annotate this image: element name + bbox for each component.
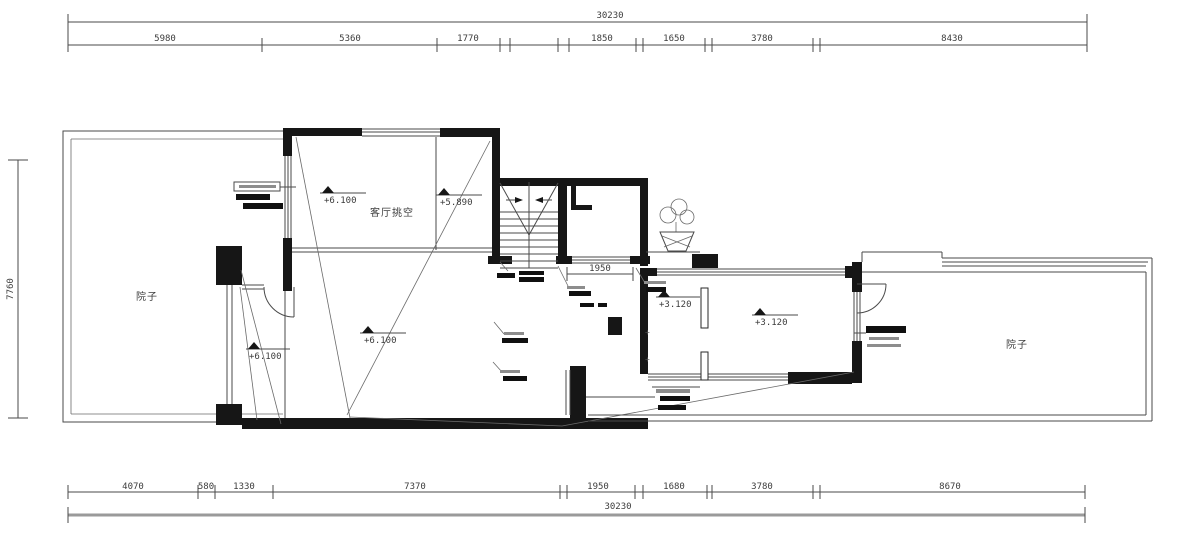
room-label-living-void: 客厅挑空 (370, 206, 414, 219)
elevation-marker-6: +3.120 (752, 308, 798, 328)
floorplan-drawing: 30230 5980 5360 1770 1850 1650 3780 8430 (0, 0, 1200, 539)
dimension-bottom-chain: 4070 580 1330 7370 1950 1680 3780 8670 (68, 482, 1085, 499)
dim-bottom-8: 8670 (939, 482, 961, 492)
dim-bottom-5: 1950 (587, 482, 609, 492)
dim-bottom-1: 4070 (122, 482, 144, 492)
room-label-courtyard-left: 院子 (136, 290, 158, 303)
elevation-value: +5.890 (440, 198, 473, 208)
elevation-value: +6.100 (364, 336, 397, 346)
elevation-value: +3.120 (659, 300, 692, 310)
elevation-marker-1: +6.100 (320, 186, 366, 206)
svg-text:+: + (645, 328, 650, 337)
annotation-stair-bottom (497, 262, 544, 282)
elevation-marker-5: +3.120 (656, 290, 700, 310)
dim-top-7: 8430 (941, 34, 963, 44)
dimension-left: 7760 (6, 160, 28, 418)
annotation-hall-1 (558, 266, 591, 296)
floorplan-canvas: 30230 5980 5360 1770 1850 1650 3780 8430 (0, 0, 1200, 539)
elevation-value: +3.120 (755, 318, 788, 328)
dim-top-2: 5360 (339, 34, 361, 44)
courtyard-right: 院子 (588, 252, 1152, 421)
wall-end-cap (701, 288, 708, 328)
dim-overall-left: 7760 (6, 278, 16, 300)
annotation-low-left (493, 362, 527, 381)
elevation-marker-4: +6.100 (246, 342, 290, 362)
elevation-marker-3: +6.100 (360, 326, 406, 346)
dim-bottom-4: 7370 (404, 482, 426, 492)
dimension-bottom-overall: 30230 (68, 502, 1085, 523)
annotation-small-bars (580, 303, 607, 307)
dim-interior: 1950 (589, 264, 611, 274)
shaft-symbol (571, 185, 592, 210)
dim-bottom-6: 1680 (663, 482, 685, 492)
room-label-courtyard-right: 院子 (1006, 338, 1028, 351)
staircase (500, 182, 558, 268)
dim-bottom-2: 580 (198, 482, 214, 492)
dimension-interior: 1950 (567, 264, 633, 281)
dim-top-3: 1770 (457, 34, 479, 44)
dim-bottom-3: 1330 (233, 482, 255, 492)
annotation-mid-left (494, 322, 528, 343)
dim-top-5: 1650 (663, 34, 685, 44)
dimension-top-overall: 30230 (68, 11, 1087, 52)
dim-overall-bottom: 30230 (604, 502, 631, 512)
dimension-top-chain: 5980 5360 1770 1850 1650 3780 8430 (68, 34, 1087, 52)
wall-end-cap (701, 352, 708, 380)
dim-top-6: 3780 (751, 34, 773, 44)
dim-top-4: 1850 (591, 34, 613, 44)
dim-bottom-7: 3780 (751, 482, 773, 492)
elevation-value: +6.100 (324, 196, 357, 206)
annotation-top-left (234, 182, 296, 209)
svg-text:+: + (645, 355, 650, 364)
dim-top-1: 5980 (154, 34, 176, 44)
plant-icon (646, 199, 700, 252)
elevation-marker-2: +5.890 (436, 188, 482, 208)
dim-overall-top: 30230 (596, 11, 623, 21)
elevation-value: +6.100 (249, 352, 282, 362)
annotation-bottom-center (586, 387, 700, 410)
door-left (264, 287, 294, 317)
